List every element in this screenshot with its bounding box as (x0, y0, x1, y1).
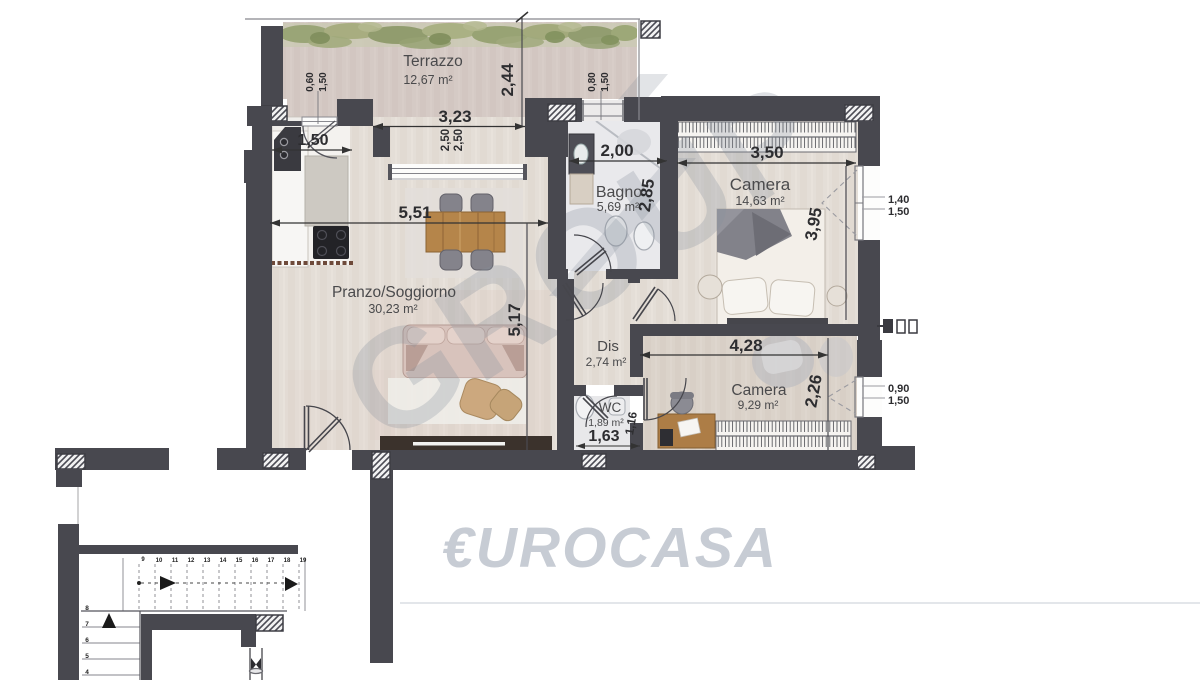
svg-text:2,74 m²: 2,74 m² (586, 355, 627, 369)
svg-text:6: 6 (85, 637, 89, 644)
svg-text:1,50: 1,50 (888, 206, 909, 218)
svg-text:10: 10 (156, 558, 163, 564)
svg-text:0,90: 0,90 (888, 383, 909, 395)
svg-text:1,89 m²: 1,89 m² (588, 417, 624, 429)
svg-text:1,63: 1,63 (588, 428, 619, 445)
svg-text:18: 18 (284, 558, 291, 564)
svg-text:1,50: 1,50 (318, 72, 329, 92)
svg-text:Camera: Camera (731, 382, 787, 399)
svg-text:1,50: 1,50 (600, 72, 611, 92)
svg-text:13: 13 (204, 558, 211, 564)
svg-text:19: 19 (300, 558, 307, 564)
svg-text:30,23 m²: 30,23 m² (368, 302, 417, 316)
svg-text:0,80: 0,80 (587, 72, 598, 92)
svg-text:1,50: 1,50 (888, 395, 909, 407)
svg-text:9,29 m²: 9,29 m² (738, 398, 779, 412)
svg-text:2,44: 2,44 (498, 63, 517, 97)
svg-text:0,60: 0,60 (305, 72, 316, 92)
svg-text:14: 14 (220, 558, 227, 564)
svg-text:€UROCASA: €UROCASA (442, 516, 778, 580)
svg-text:16: 16 (252, 558, 259, 564)
svg-text:3,23: 3,23 (438, 107, 471, 126)
svg-text:5,69 m²: 5,69 m² (597, 200, 639, 214)
svg-text:7: 7 (85, 621, 89, 628)
svg-text:2,50: 2,50 (440, 129, 452, 151)
svg-text:4,28: 4,28 (729, 336, 762, 355)
svg-text:1,50: 1,50 (297, 132, 328, 149)
svg-text:14,63 m²: 14,63 m² (735, 194, 784, 208)
svg-text:11: 11 (172, 558, 179, 564)
svg-text:17: 17 (268, 558, 275, 564)
svg-text:Dis: Dis (597, 338, 619, 355)
svg-text:Bagno: Bagno (596, 184, 642, 201)
svg-text:Pranzo/Soggiorno: Pranzo/Soggiorno (332, 284, 456, 301)
svg-text:15: 15 (236, 558, 243, 564)
svg-text:WC: WC (599, 400, 622, 415)
svg-text:5: 5 (85, 653, 89, 660)
svg-text:2,50: 2,50 (453, 129, 465, 151)
svg-text:2,00: 2,00 (600, 141, 633, 160)
svg-text:5,51: 5,51 (398, 203, 431, 222)
svg-text:Camera: Camera (730, 175, 791, 194)
svg-text:3,50: 3,50 (750, 143, 783, 162)
svg-text:12: 12 (188, 558, 195, 564)
svg-text:Terrazzo: Terrazzo (403, 53, 462, 70)
svg-text:12,67 m²: 12,67 m² (403, 73, 452, 87)
svg-text:4: 4 (85, 669, 89, 676)
svg-text:8: 8 (85, 605, 89, 612)
svg-text:5,17: 5,17 (505, 303, 524, 336)
svg-text:1,40: 1,40 (888, 194, 909, 206)
